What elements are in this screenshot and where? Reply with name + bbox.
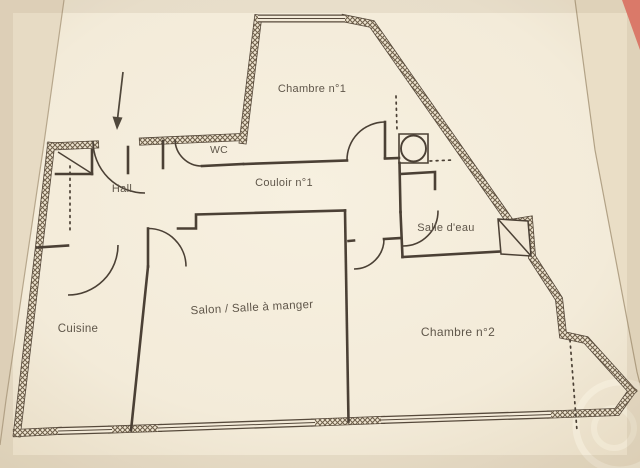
floor-plan-photo: Chambre n°1 WC Hall Couloir n°1 Salle d'… <box>0 0 640 468</box>
room-label-salle-eau: Salle d'eau <box>417 222 474 234</box>
room-label-chambre1: Chambre n°1 <box>278 83 346 95</box>
room-label-hall: Hall <box>112 183 132 195</box>
duct-shaft <box>498 219 531 256</box>
chambre2-wall-right-bit <box>384 238 401 239</box>
room-label-couloir: Couloir n°1 <box>255 177 313 189</box>
room-label-wc: WC <box>210 144 228 156</box>
room-label-chambre2: Chambre n°2 <box>421 325 495 339</box>
couloir-wall-seg <box>385 158 399 159</box>
chambre2-wall-left-bit <box>349 241 355 242</box>
vestibule-wall <box>400 163 401 212</box>
paper-background <box>0 0 640 468</box>
room-label-cuisine: Cuisine <box>58 323 98 335</box>
floor-plan-svg: Chambre n°1 WC Hall Couloir n°1 Salle d'… <box>0 0 640 468</box>
